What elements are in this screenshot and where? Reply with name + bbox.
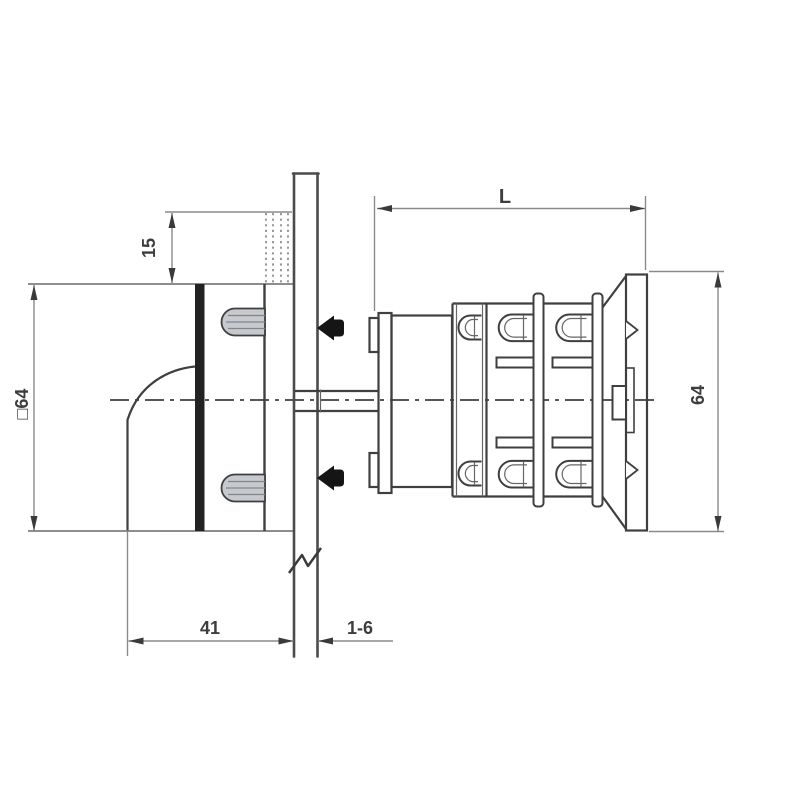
dim-label-1-6: 1-6 <box>347 618 373 638</box>
dim-label-15: 15 <box>139 238 159 258</box>
drawing-canvas: 15 □64 L 64 41 1-6 <box>0 0 800 800</box>
arrowhead <box>169 213 176 228</box>
clamp-screw-top <box>317 316 344 341</box>
terminal-large-top-2 <box>556 315 592 342</box>
arrowhead <box>31 285 38 300</box>
drive-shaft <box>295 390 379 413</box>
flange-stud-top <box>222 309 265 336</box>
terminal-small-top <box>459 316 482 340</box>
separator-plate-1 <box>534 294 544 507</box>
mechanism-housing <box>392 316 453 488</box>
arrowhead <box>31 516 38 531</box>
dim-handle-depth: 41 <box>129 618 294 645</box>
screw-shape <box>317 316 344 341</box>
screw-shape <box>317 466 344 491</box>
arrowhead <box>630 205 645 212</box>
terminal-large-top-1 <box>499 315 533 342</box>
terminal-large-bottom-1 <box>499 461 533 488</box>
rear-shaft-boss <box>613 386 627 420</box>
separator-plate-2 <box>593 294 603 507</box>
dim-body-height: 64 <box>649 272 724 532</box>
terminal-outline <box>459 462 482 486</box>
front-plate-tab-bottom <box>370 453 379 487</box>
dim-body-length: L <box>375 186 646 311</box>
handle-assembly <box>28 213 293 656</box>
end-section-bottom-chamfer <box>603 497 627 530</box>
arrowhead <box>715 273 722 288</box>
end-section-top-chamfer <box>603 276 627 308</box>
terminal-outline <box>459 316 482 340</box>
arrowhead <box>129 638 144 645</box>
cam-switch-technical-drawing: 15 □64 L 64 41 1-6 <box>0 0 800 800</box>
arrowhead <box>318 638 333 645</box>
back-plate-notch-top <box>626 321 638 339</box>
flange-stud-bottom <box>222 475 266 502</box>
mounting-panel <box>289 174 321 657</box>
dim-label-L: L <box>499 186 511 208</box>
dim-label-square-64: □64 <box>12 389 32 420</box>
front-plate <box>379 313 392 493</box>
clamp-screw-bottom <box>317 466 344 491</box>
back-plate-notch-bottom <box>626 461 638 479</box>
back-plate-body <box>626 275 647 531</box>
terminal-small-bottom <box>459 462 482 486</box>
arrowhead <box>169 268 176 283</box>
dim-panel-thickness: 1-6 <box>318 618 393 645</box>
switch-body <box>370 276 627 529</box>
front-plate-tab-top <box>370 318 379 352</box>
knob-profile <box>128 367 196 532</box>
dim-label-41: 41 <box>200 618 220 638</box>
terminal-large-bottom-2 <box>556 461 592 488</box>
dim-handle-square: □64 <box>12 284 160 531</box>
dim-knob-height: 15 <box>139 212 292 283</box>
dim-label-64: 64 <box>688 385 708 405</box>
arrowhead <box>715 516 722 531</box>
knob-face-plate <box>195 284 205 531</box>
arrowhead <box>279 638 294 645</box>
arrowhead <box>377 205 392 212</box>
hidden-neck-lines <box>266 213 288 283</box>
back-plate <box>613 275 648 531</box>
